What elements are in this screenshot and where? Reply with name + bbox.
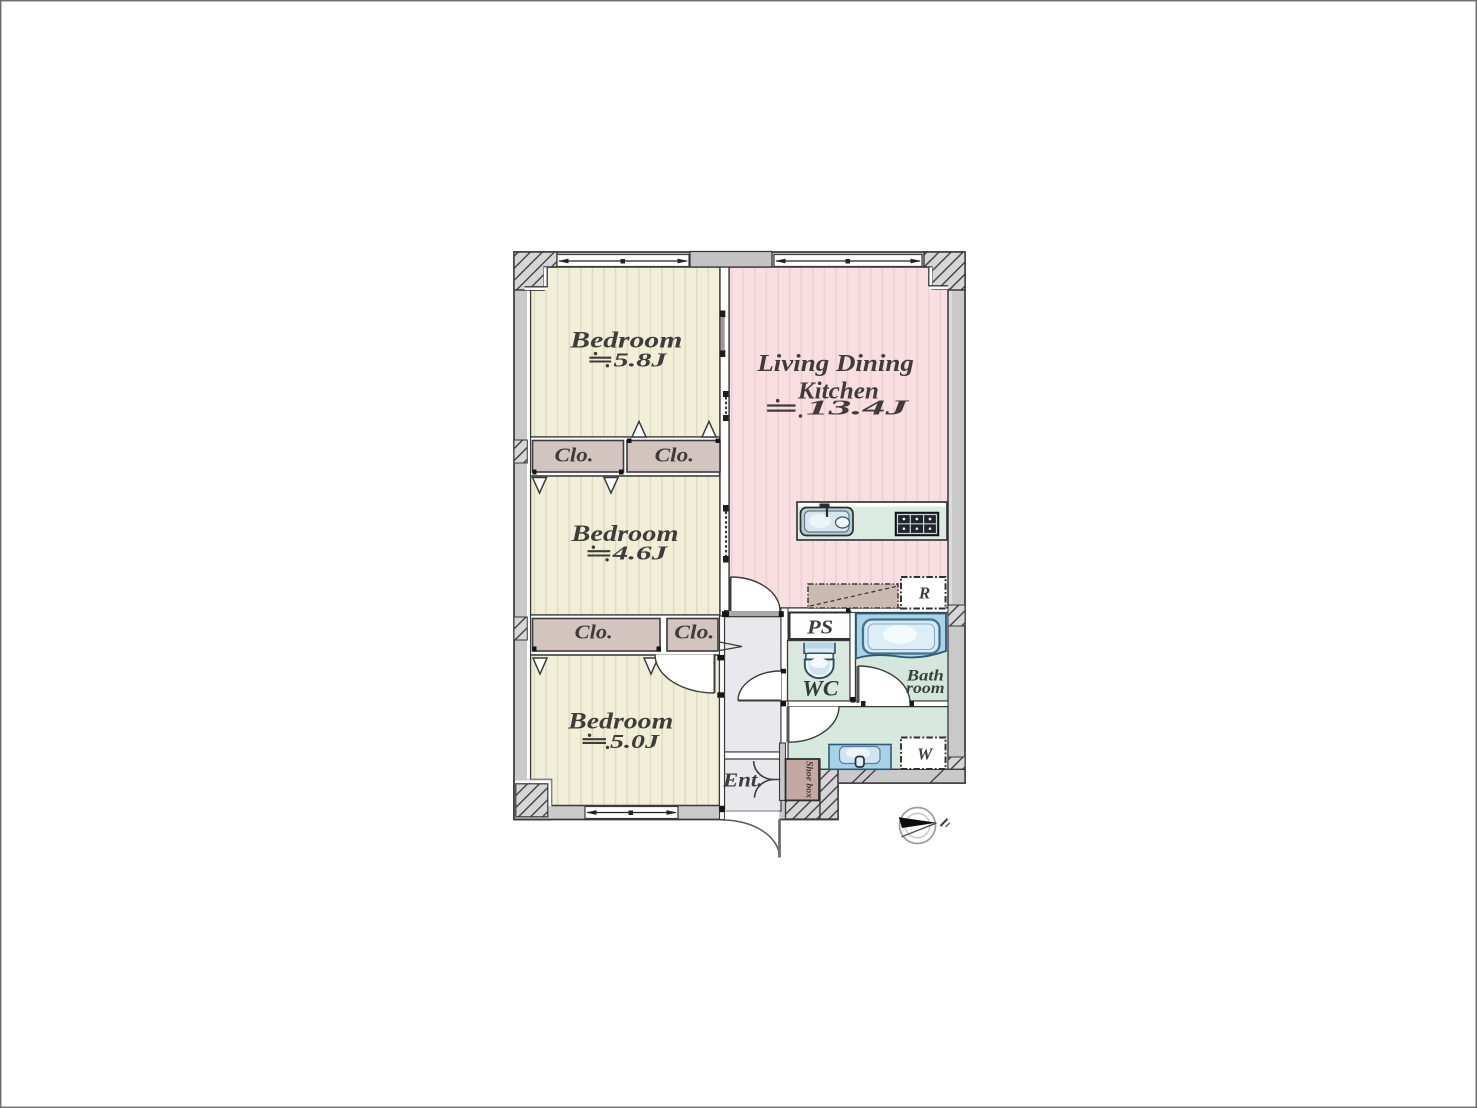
svg-text:room: room <box>906 680 945 697</box>
svg-text:Clo.: Clo. <box>655 445 694 467</box>
svg-text:5.0J: 5.0J <box>610 732 661 753</box>
svg-text:Clo.: Clo. <box>575 622 613 644</box>
svg-text:4.6J: 4.6J <box>611 544 669 565</box>
svg-text:Living Dining: Living Dining <box>756 350 914 377</box>
svg-text:W: W <box>917 745 934 764</box>
svg-text:Ent.: Ent. <box>722 770 763 792</box>
svg-text:Bedroom: Bedroom <box>569 327 682 352</box>
svg-text:5.8J: 5.8J <box>614 350 669 371</box>
svg-text:Clo.: Clo. <box>555 445 594 467</box>
svg-text:PS: PS <box>806 617 833 639</box>
svg-text:Bedroom: Bedroom <box>567 709 673 734</box>
svg-text:Clo.: Clo. <box>674 622 714 644</box>
svg-text:Bedroom: Bedroom <box>570 521 678 546</box>
svg-text:R: R <box>918 584 930 603</box>
svg-text:WC: WC <box>802 676 838 701</box>
svg-text:Shoe box: Shoe box <box>805 761 815 799</box>
svg-text:13.4J: 13.4J <box>806 395 911 419</box>
